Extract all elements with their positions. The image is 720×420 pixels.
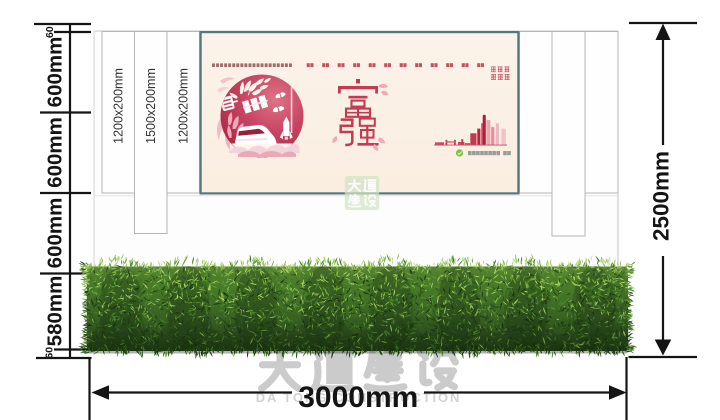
svg-text:600mm: 600mm: [44, 117, 67, 188]
svg-text:600mm: 600mm: [44, 198, 67, 269]
svg-text:60: 60: [44, 26, 56, 38]
svg-text:580mm: 580mm: [44, 276, 67, 347]
svg-text:600mm: 600mm: [44, 37, 67, 108]
svg-text:1500x200mm: 1500x200mm: [144, 68, 158, 144]
svg-text:3000mm: 3000mm: [298, 381, 418, 414]
svg-text:1200x200mm: 1200x200mm: [177, 68, 191, 144]
svg-text:1200x200mm: 1200x200mm: [112, 68, 126, 144]
svg-text:60: 60: [44, 347, 56, 359]
svg-text:2500mm: 2500mm: [649, 151, 674, 241]
